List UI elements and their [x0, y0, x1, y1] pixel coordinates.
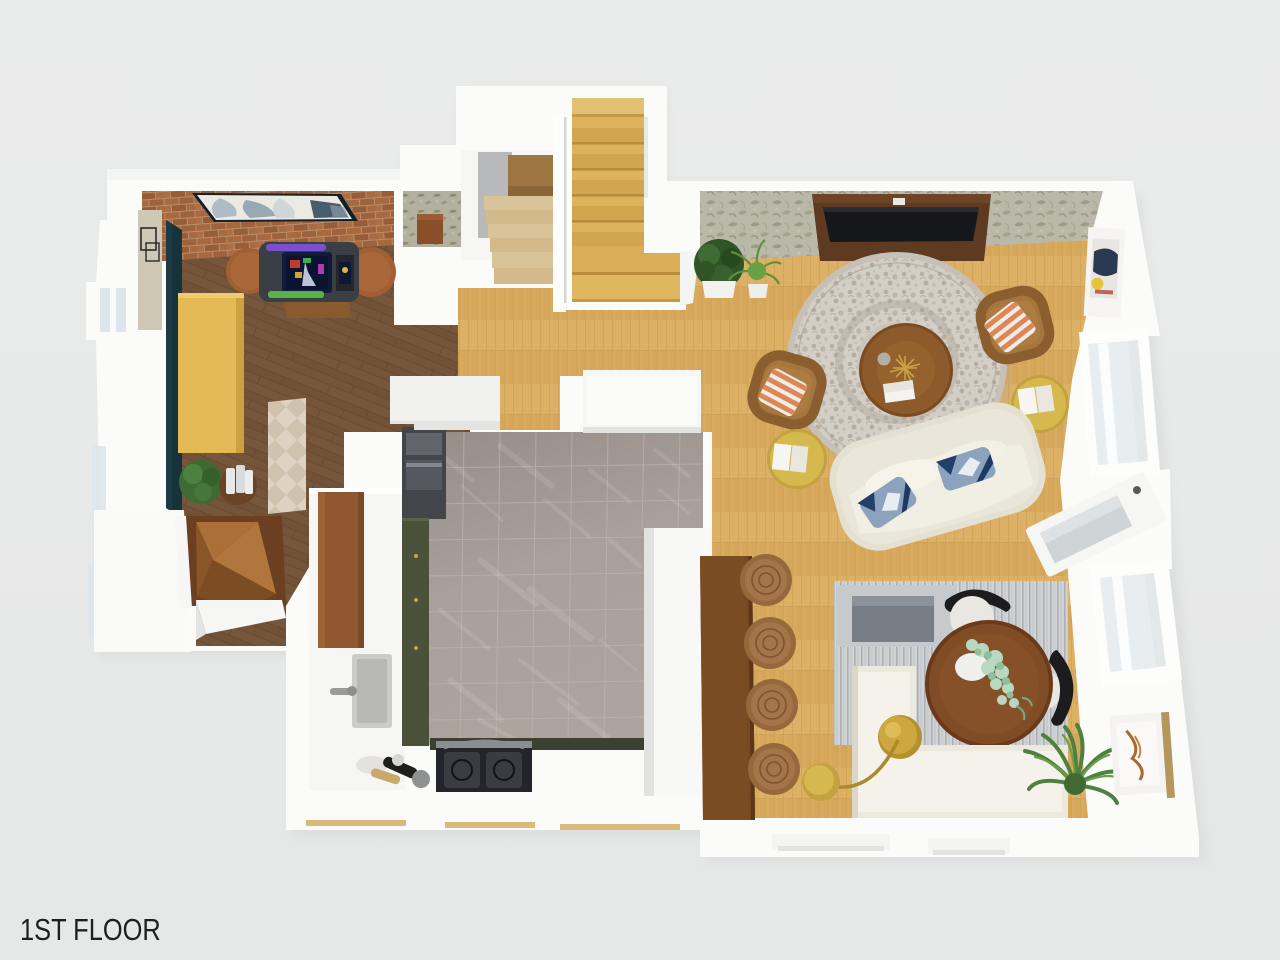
svg-text:1ST FLOOR: 1ST FLOOR [20, 913, 161, 948]
